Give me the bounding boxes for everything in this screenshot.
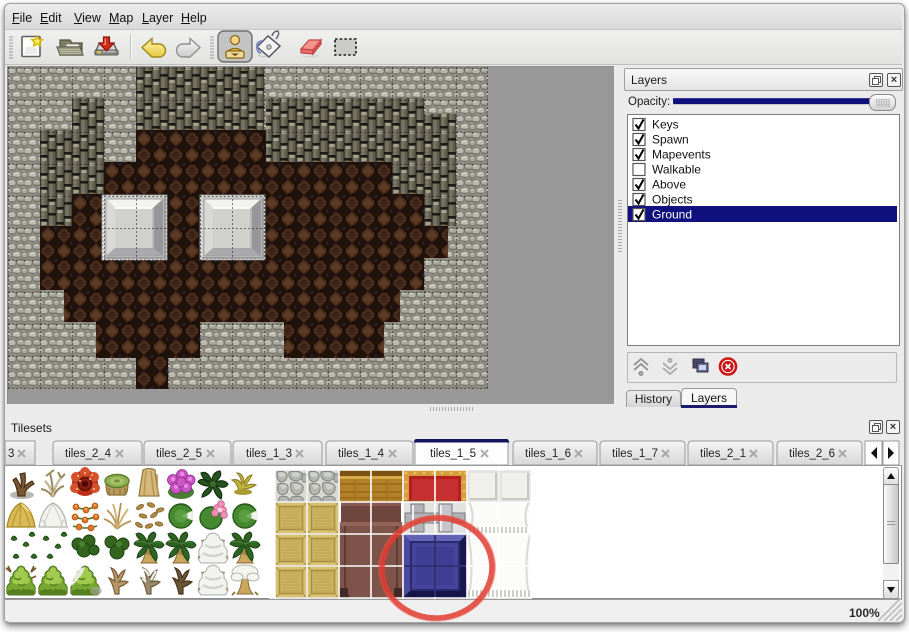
svg-text:tiles_1_6: tiles_1_6 [525,448,571,460]
svg-text:Ground: Ground [652,208,692,222]
svg-text:tiles_1_4: tiles_1_4 [338,448,385,460]
svg-text:Walkable: Walkable [652,163,701,177]
svg-text:Above: Above [652,178,686,192]
svg-text:Objects: Objects [652,193,693,207]
svg-text:Mapevents: Mapevents [652,148,711,162]
svg-text:3: 3 [8,448,14,460]
svg-text:Spawn: Spawn [652,133,689,147]
svg-text:tiles_2_5: tiles_2_5 [156,448,202,460]
svg-text:tiles_2_4: tiles_2_4 [65,448,112,460]
svg-text:tiles_2_1: tiles_2_1 [700,448,746,460]
svg-text:tiles_1_5: tiles_1_5 [430,448,476,460]
svg-text:tiles_2_6: tiles_2_6 [789,448,835,460]
svg-text:Keys: Keys [652,118,679,132]
svg-text:tiles_1_3: tiles_1_3 [246,448,292,460]
svg-text:tiles_1_7: tiles_1_7 [612,448,658,460]
